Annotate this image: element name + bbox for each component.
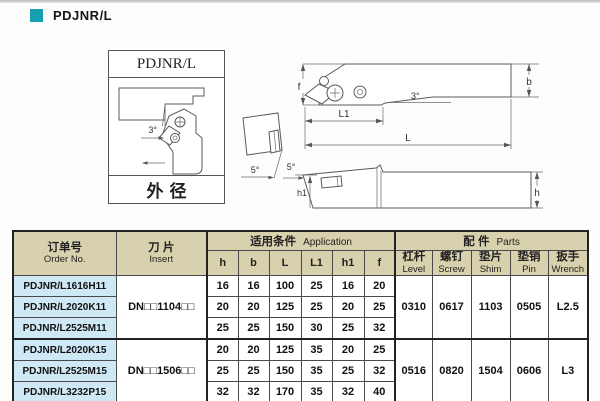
cell-insert: DN□□1506□□ <box>116 339 207 401</box>
right-5deg-label: 5° <box>287 162 296 172</box>
col-header-screw-en: Screw <box>433 265 471 275</box>
cell-L: 150 <box>269 318 301 340</box>
cell-h: 25 <box>207 318 238 340</box>
header-insert-zh: 刀 片 <box>117 242 207 256</box>
cell-h: 16 <box>207 276 238 297</box>
cell-screw: 0820 <box>432 339 471 401</box>
cell-h1: 20 <box>332 297 364 318</box>
col-header-shim: 垫片 Shim <box>471 251 510 276</box>
cell-shim: 1504 <box>471 339 510 401</box>
col-header-b: b <box>238 251 269 276</box>
cell-h1: 25 <box>332 361 364 382</box>
cell-b: 20 <box>238 339 269 361</box>
top-divider <box>0 0 600 3</box>
cell-L1: 35 <box>301 382 332 401</box>
cell-f: 32 <box>364 318 395 340</box>
cell-b: 25 <box>238 361 269 382</box>
header-parts-group: 配 件Parts <box>395 231 588 251</box>
f-dim-arrows <box>301 64 305 105</box>
cell-pin: 0505 <box>510 276 548 340</box>
cell-order-no: PDJNR/L2020K11 <box>13 297 116 318</box>
header-order-no-zh: 订单号 <box>14 242 116 256</box>
cell-insert: DN□□1104□□ <box>116 276 207 340</box>
cell-b: 25 <box>238 318 269 340</box>
accent-square-icon <box>30 9 43 22</box>
col-header-shim-zh: 垫片 <box>472 251 510 265</box>
catalog-page: PDJNR/L PDJNR/L 3° <box>0 0 600 401</box>
left-5deg-label: 5° <box>251 165 260 175</box>
table-row: PDJNR/L1616H11 DN□□1104□□ 16 16 100 25 1… <box>13 276 588 297</box>
cell-level: 0310 <box>395 276 432 340</box>
col-header-L1: L1 <box>301 251 332 276</box>
f-dim-label: f <box>298 82 301 93</box>
b-dim-label: b <box>526 77 532 88</box>
lever-pin-icon <box>320 77 329 86</box>
cell-h1: 20 <box>332 339 364 361</box>
cell-b: 16 <box>238 276 269 297</box>
feed-direction-arrow <box>142 161 148 165</box>
cell-h1: 32 <box>332 382 364 401</box>
lead-angle-label: 3° <box>148 125 157 135</box>
header-application-en: Application <box>303 237 352 248</box>
header-order-no: 订单号 Order No. <box>13 231 116 276</box>
col-header-wrench: 扳手 Wrench <box>548 251 588 276</box>
col-header-pin-zh: 垫销 <box>511 251 548 265</box>
pivot-ring-icon <box>171 134 180 143</box>
col-header-level: 杠杆 Level <box>395 251 432 276</box>
relief-angle-label: 3° <box>411 91 420 101</box>
table-row: PDJNR/L2020K15 DN□□1506□□ 20 20 125 35 2… <box>13 339 588 361</box>
cell-L1: 25 <box>301 297 332 318</box>
header-parts-zh: 配 件 <box>463 236 489 248</box>
cell-level: 0516 <box>395 339 432 401</box>
cell-wrench: L2.5 <box>548 276 588 340</box>
col-header-screw: 螺钉 Screw <box>432 251 471 276</box>
cell-wrench: L3 <box>548 339 588 401</box>
cell-L1: 35 <box>301 361 332 382</box>
cell-L: 150 <box>269 361 301 382</box>
header-application-zh: 适用条件 <box>250 236 296 248</box>
cell-order-no: PDJNR/L2525M11 <box>13 318 116 340</box>
cell-b: 32 <box>238 382 269 401</box>
col-header-level-zh: 杠杆 <box>396 251 432 265</box>
tool-application-box: PDJNR/L 3° 外径 <box>108 50 225 204</box>
cell-order-no: PDJNR/L3232P15 <box>13 382 116 401</box>
page-header: PDJNR/L <box>30 8 112 23</box>
b-dim-lines <box>511 64 539 97</box>
cell-b: 20 <box>238 297 269 318</box>
cell-pin: 0606 <box>510 339 548 401</box>
dimension-drawings: 3° f b L1 L 5° 5° h1 <box>233 45 595 233</box>
header-application-group: 适用条件Application <box>207 231 395 251</box>
h-dim-label: h <box>534 188 540 199</box>
col-header-pin-en: Pin <box>511 265 548 275</box>
h1-dim-label: h1 <box>297 188 307 198</box>
col-header-wrench-zh: 扳手 <box>549 251 588 265</box>
header-order-no-en: Order No. <box>14 255 116 265</box>
pocket-top-view <box>321 176 342 188</box>
cell-L1: 25 <box>301 276 332 297</box>
col-header-h1: h1 <box>332 251 364 276</box>
col-header-screw-zh: 螺钉 <box>433 251 471 265</box>
cell-f: 25 <box>364 339 395 361</box>
l1-dim-label: L1 <box>338 109 350 120</box>
cell-L: 170 <box>269 382 301 401</box>
header-insert-en: Insert <box>117 255 207 265</box>
external-turning-diagram: 3° <box>109 78 224 175</box>
tool-model-label: PDJNR/L <box>109 51 224 78</box>
spec-table: 订单号 Order No. 刀 片 Insert 适用条件Application… <box>12 230 589 401</box>
cell-L1: 30 <box>301 318 332 340</box>
col-header-shim-en: Shim <box>472 265 510 275</box>
cell-h: 20 <box>207 297 238 318</box>
cell-f: 25 <box>364 297 395 318</box>
cell-f: 40 <box>364 382 395 401</box>
cell-h1: 16 <box>332 276 364 297</box>
header-parts-en: Parts <box>496 237 519 248</box>
cell-screw: 0617 <box>432 276 471 340</box>
l-dim-label: L <box>405 133 411 144</box>
cell-order-no: PDJNR/L2525M15 <box>13 361 116 382</box>
cell-order-no: PDJNR/L2020K15 <box>13 339 116 361</box>
machining-type-caption: 外径 <box>109 175 224 203</box>
left-5deg-arrow <box>269 176 275 180</box>
col-header-pin: 垫销 Pin <box>510 251 548 276</box>
col-header-level-en: Level <box>396 265 432 275</box>
cell-L: 125 <box>269 297 301 318</box>
cell-h1: 25 <box>332 318 364 340</box>
page-title: PDJNR/L <box>53 8 112 23</box>
cell-L1: 35 <box>301 339 332 361</box>
cell-h: 25 <box>207 361 238 382</box>
header-insert: 刀 片 Insert <box>116 231 207 276</box>
cell-f: 32 <box>364 361 395 382</box>
cell-L: 100 <box>269 276 301 297</box>
col-header-L: L <box>269 251 301 276</box>
col-header-f: f <box>364 251 395 276</box>
col-header-wrench-en: Wrench <box>549 265 588 275</box>
cell-shim: 1103 <box>471 276 510 340</box>
cell-order-no: PDJNR/L1616H11 <box>13 276 116 297</box>
col-header-h: h <box>207 251 238 276</box>
cell-L: 125 <box>269 339 301 361</box>
cell-h: 32 <box>207 382 238 401</box>
shim-pin-ring-icon <box>354 86 366 98</box>
cell-h: 20 <box>207 339 238 361</box>
cell-f: 20 <box>364 276 395 297</box>
